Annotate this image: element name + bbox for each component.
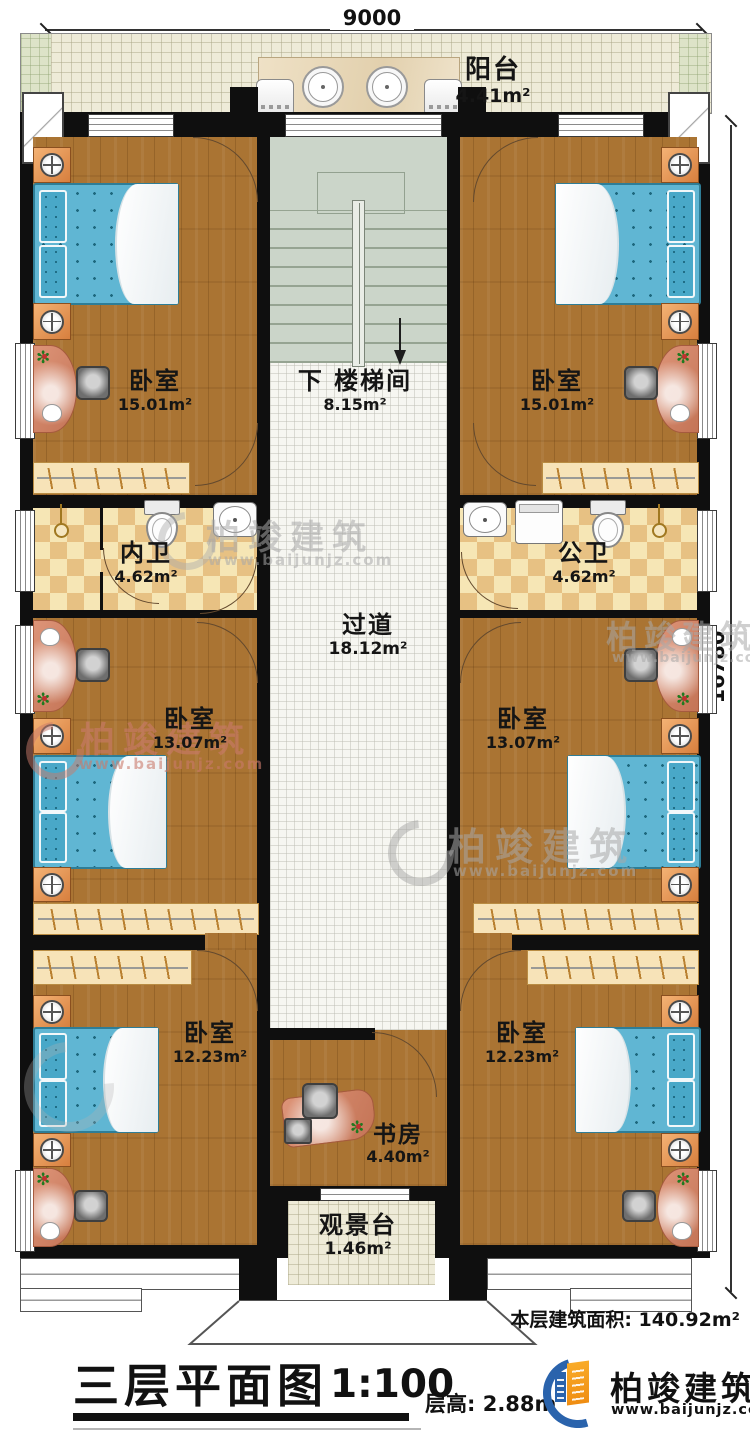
water-heater-icon — [256, 79, 294, 114]
towel-ring-icon — [650, 504, 666, 538]
cup-icon — [672, 1222, 692, 1240]
table-lamp-icon — [40, 153, 64, 177]
room-label-bedroom-bottom-left: 卧室 12.23m² — [165, 1020, 255, 1066]
cup-icon — [40, 1222, 60, 1240]
cup-icon — [42, 404, 62, 422]
brand-logo-building-icon — [555, 1372, 566, 1402]
stair-arrow — [399, 318, 401, 352]
watermark-url: www.baijunjz.com — [612, 650, 750, 666]
table-lamp-icon — [668, 873, 692, 897]
watermark-url: www.baijunjz.com — [79, 755, 264, 773]
cup-icon — [670, 404, 690, 422]
towel-ring-icon — [52, 504, 68, 538]
floor-plan-page: { "dimensions": { "width_label": "9000",… — [0, 0, 750, 1438]
room-corridor — [270, 363, 447, 1030]
wardrobe — [33, 903, 259, 935]
table-lamp-icon — [668, 724, 692, 748]
sink-icon — [302, 66, 344, 108]
cup-icon — [40, 628, 60, 646]
room-label-study: 书房 4.40m² — [352, 1122, 444, 1167]
flower-icon — [36, 690, 53, 707]
room-label-balcony: 阳台 4.41m² — [448, 56, 538, 108]
door-threshold — [205, 933, 257, 950]
window — [697, 343, 717, 439]
flower-icon — [676, 690, 693, 707]
watermark-url: www.baijunjz.com — [208, 551, 393, 569]
window — [697, 510, 717, 592]
chair — [74, 1190, 108, 1222]
table-lamp-icon — [668, 153, 692, 177]
pillow — [667, 1080, 695, 1127]
room-label-bedroom-top-left: 卧室 15.01m² — [110, 368, 200, 414]
wardrobe — [33, 950, 192, 985]
nightstand — [661, 303, 699, 340]
pillow — [667, 1033, 695, 1080]
page-title: 三层平面图 — [73, 1350, 328, 1416]
window — [15, 343, 35, 439]
nightstand — [661, 718, 699, 754]
blanket — [556, 184, 619, 304]
title-underline-thin — [73, 1428, 421, 1430]
floor-area-text: 本层建筑面积: 140.92m² — [440, 1305, 740, 1332]
window — [88, 114, 174, 137]
room-label-bedroom-mid-left: 卧室 13.07m² — [145, 706, 235, 752]
room-label-corridor: 过道 18.12m² — [322, 612, 414, 659]
blanket — [115, 184, 178, 304]
watermark-url: www.baijunjz.com — [453, 862, 638, 880]
pillow — [667, 761, 695, 811]
nightstand — [33, 995, 71, 1029]
room-label-bedroom-mid-right: 卧室 13.07m² — [478, 706, 568, 752]
nightstand — [661, 1133, 699, 1167]
pillow — [39, 812, 67, 862]
window — [15, 1170, 35, 1252]
entry-step — [20, 1288, 142, 1312]
brand-logo: 柏竣建筑 www.baijunjz.com — [543, 1356, 743, 1426]
nightstand — [661, 995, 699, 1029]
pillow — [39, 190, 67, 244]
nightstand — [33, 303, 71, 340]
wardrobe — [527, 950, 699, 985]
table-lamp-icon — [40, 873, 64, 897]
room-label-bedroom-top-right: 卧室 15.01m² — [512, 368, 602, 414]
pillow — [667, 245, 695, 299]
room-label-bath-public: 公卫 4.62m² — [538, 540, 630, 586]
nightstand — [661, 147, 699, 183]
table-lamp-icon — [40, 1138, 64, 1162]
dimension-width-label: 9000 — [330, 6, 414, 30]
door-threshold — [460, 933, 512, 950]
window — [15, 510, 35, 592]
stair-arrow-head — [394, 350, 406, 365]
room-label-stairwell: 下 楼梯间 8.15m² — [288, 368, 422, 414]
title-underline — [73, 1413, 409, 1421]
floor-area-value: 140.92m² — [639, 1309, 740, 1331]
nightstand — [661, 867, 699, 902]
printer-icon — [284, 1118, 312, 1144]
flower-icon — [676, 348, 693, 365]
window — [558, 114, 644, 137]
wall — [270, 1028, 375, 1040]
chair — [76, 648, 110, 682]
pillow — [667, 190, 695, 244]
nightstand — [33, 1133, 71, 1167]
room-label-bath-inner: 内卫 4.62m² — [100, 540, 192, 586]
flower-icon — [36, 348, 53, 365]
washing-machine-icon — [515, 500, 563, 544]
double-bed — [555, 183, 701, 305]
table-lamp-icon — [668, 1138, 692, 1162]
chair — [622, 1190, 656, 1222]
window — [15, 625, 35, 714]
brand-website: www.baijunjz.com — [611, 1402, 750, 1418]
brand-logo-building-icon — [567, 1360, 589, 1405]
wardrobe — [33, 462, 190, 494]
floor-area-label: 本层建筑面积: — [510, 1309, 632, 1331]
window — [320, 1188, 410, 1201]
window — [697, 1170, 717, 1252]
pillow — [667, 812, 695, 862]
room-label-bedroom-bottom-right: 卧室 12.23m² — [477, 1020, 567, 1066]
sink-icon — [366, 66, 408, 108]
wardrobe — [542, 462, 699, 494]
wall — [230, 87, 258, 114]
double-bed — [33, 183, 179, 305]
double-bed — [575, 1027, 701, 1133]
table-lamp-icon — [40, 310, 64, 334]
floor-height-label: 层高: — [425, 1392, 475, 1416]
table-lamp-icon — [40, 1000, 64, 1024]
wardrobe — [473, 903, 699, 935]
sink-icon — [463, 502, 507, 537]
table-lamp-icon — [668, 310, 692, 334]
room-label-viewing-deck: 观景台 1.46m² — [312, 1212, 404, 1259]
stair-rail — [352, 200, 365, 367]
chair — [302, 1083, 338, 1119]
flower-icon — [36, 1170, 53, 1187]
floor-height-text: 层高: 2.88m — [425, 1388, 556, 1418]
table-lamp-icon — [668, 1000, 692, 1024]
flower-icon — [676, 1170, 693, 1187]
chair — [624, 366, 658, 400]
blanket — [576, 1028, 631, 1132]
nightstand — [33, 147, 71, 183]
pillow — [39, 245, 67, 299]
window — [285, 114, 442, 137]
nightstand — [33, 867, 71, 902]
chair — [76, 366, 110, 400]
